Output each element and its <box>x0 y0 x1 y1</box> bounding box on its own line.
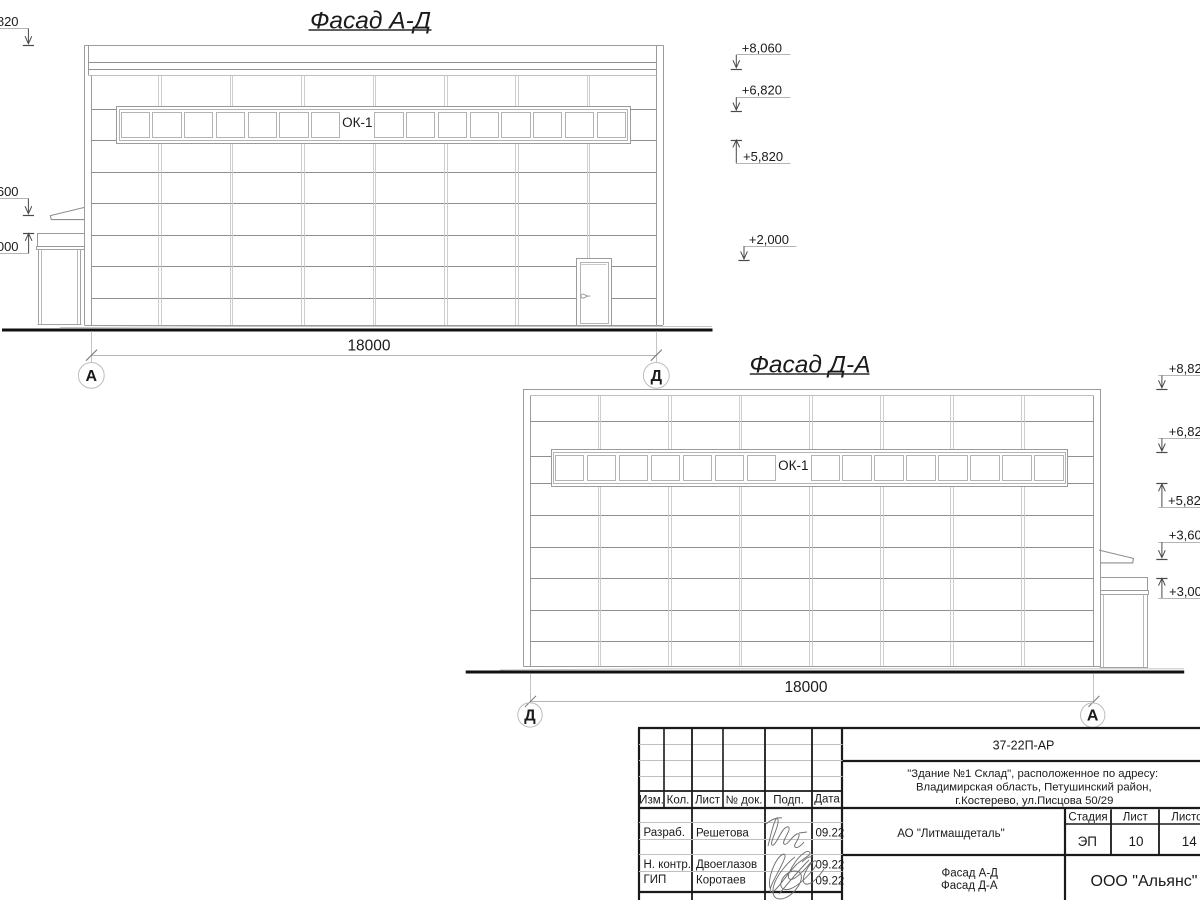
svg-text:+2,000: +2,000 <box>0 239 19 254</box>
svg-text:Владимирская область, Петушинс: Владимирская область, Петушинский район, <box>916 781 1152 793</box>
svg-text:Лист: Лист <box>695 795 721 807</box>
svg-text:Коротаев: Коротаев <box>696 875 746 887</box>
svg-text:№ док.: № док. <box>726 795 763 807</box>
svg-text:Листов: Листов <box>1171 811 1200 823</box>
svg-text:Решетова: Решетова <box>696 828 749 840</box>
svg-text:+3,000: +3,000 <box>1169 584 1200 599</box>
svg-text:Д: Д <box>651 368 663 385</box>
svg-text:г.Костерево, ул.Писцова 50/29: г.Костерево, ул.Писцова 50/29 <box>955 795 1113 807</box>
svg-text:09.22: 09.22 <box>816 828 845 840</box>
svg-text:А: А <box>86 368 98 385</box>
svg-text:+6,820: +6,820 <box>742 83 782 98</box>
svg-text:+2,000: +2,000 <box>749 232 789 247</box>
svg-text:+8,060: +8,060 <box>742 40 782 55</box>
svg-text:+8,820: +8,820 <box>0 14 19 29</box>
svg-text:+5,820: +5,820 <box>743 149 783 164</box>
svg-text:Н. контр.: Н. контр. <box>644 859 691 871</box>
svg-text:"Здание №1 Склад", расположенн: "Здание №1 Склад", расположенное по адре… <box>907 768 1158 780</box>
svg-text:+3,600: +3,600 <box>1169 528 1200 543</box>
svg-text:А: А <box>1087 708 1099 725</box>
svg-text:Двоеглазов: Двоеглазов <box>696 859 757 871</box>
svg-text:09.22: 09.22 <box>816 859 845 871</box>
svg-text:Стадия: Стадия <box>1068 811 1107 823</box>
svg-text:37-22П-АР: 37-22П-АР <box>993 739 1055 753</box>
svg-text:Разраб.: Разраб. <box>644 827 685 839</box>
svg-text:Д: Д <box>524 708 536 725</box>
svg-text:Подп.: Подп. <box>773 795 804 807</box>
svg-text:Лист: Лист <box>1123 811 1149 823</box>
svg-text:Кол.: Кол. <box>667 795 690 807</box>
svg-text:10: 10 <box>1128 834 1143 849</box>
svg-text:Изм.: Изм. <box>639 795 664 807</box>
svg-text:Фасад Д-А: Фасад Д-А <box>941 880 998 892</box>
svg-text:+3,600: +3,600 <box>0 184 19 199</box>
svg-text:ЭП: ЭП <box>1078 834 1097 849</box>
svg-text:ОК-1: ОК-1 <box>342 115 372 130</box>
svg-text:АО "Литмашдеталь": АО "Литмашдеталь" <box>897 828 1004 840</box>
svg-text:09.22: 09.22 <box>816 876 845 888</box>
svg-text:+8,820: +8,820 <box>1169 361 1200 376</box>
svg-text:14: 14 <box>1182 834 1198 849</box>
svg-text:ОК-1: ОК-1 <box>778 458 808 473</box>
svg-text:18000: 18000 <box>347 338 390 355</box>
svg-text:18000: 18000 <box>784 679 827 696</box>
svg-text:Фасад А-Д: Фасад А-Д <box>941 868 998 880</box>
svg-text:Дата: Дата <box>814 794 840 806</box>
svg-text:+5,820: +5,820 <box>1168 493 1200 508</box>
svg-text:ГИП: ГИП <box>644 874 667 886</box>
svg-text:ООО "Альянс": ООО "Альянс" <box>1091 873 1198 890</box>
svg-text:+6,820: +6,820 <box>1169 424 1200 439</box>
